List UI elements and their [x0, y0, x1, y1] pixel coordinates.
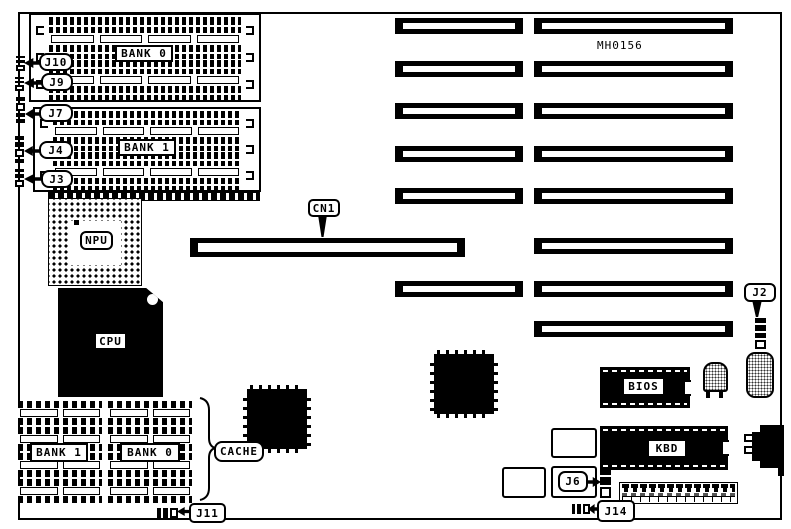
rom-dash: [603, 465, 725, 467]
slot-opening: [542, 151, 725, 157]
socket-clip-icon: [246, 145, 254, 154]
simm-body: [55, 127, 97, 135]
simm-body-row: [51, 35, 239, 43]
callout-j7: J7: [39, 104, 73, 122]
slot-opening: [403, 23, 515, 29]
jumper-j4: [15, 136, 24, 163]
simm-socket-row: [53, 178, 241, 190]
bios-label: BIOS: [623, 378, 664, 395]
simm-socket-row: [49, 60, 241, 74]
isa-slot-ext: [395, 18, 523, 34]
slot-opening: [198, 243, 457, 252]
rom-notch-icon: [721, 440, 729, 456]
slot-opening: [542, 23, 725, 29]
crystal-icon: [746, 352, 774, 398]
simm-body: [148, 35, 191, 43]
bank0-cache-label: BANK 0: [120, 443, 180, 462]
kbd-label: KBD: [648, 440, 686, 457]
isa-slot: [534, 103, 733, 119]
isa-slot-ext: [395, 61, 523, 77]
callout-cn1: CN1: [308, 199, 340, 217]
callout-j6: J6: [558, 471, 588, 492]
header-pins: [622, 488, 735, 492]
simm-body: [103, 168, 145, 176]
part-number: MH0156: [597, 39, 643, 52]
slot-opening: [403, 286, 515, 292]
bank1-simm-label: BANK 1: [118, 139, 176, 156]
socket-clip-icon: [246, 26, 254, 35]
simm-body: [51, 35, 94, 43]
isa-slot: [534, 281, 733, 297]
slot-opening: [542, 108, 725, 114]
socket-clips-right: [244, 17, 256, 98]
socket-clip-icon: [246, 119, 254, 128]
simm-socket-row: [49, 86, 241, 100]
cn1-slot: [190, 238, 465, 257]
callout-j3: J3: [41, 170, 73, 188]
simm-body: [100, 76, 143, 84]
rom-notch-icon: [683, 380, 691, 396]
simm-socket-row: [53, 111, 241, 125]
npu-label: NPU: [80, 231, 113, 250]
simm-body-row: [55, 168, 239, 176]
header-sockets: [622, 496, 735, 502]
kbd-pin-header: [619, 482, 738, 504]
callout-j9: J9: [41, 73, 73, 91]
simm-body-row: [51, 76, 239, 84]
isa-slot-ext: [395, 146, 523, 162]
socket-clip-icon: [246, 53, 254, 62]
socket-clip-icon: [36, 26, 44, 35]
slot-opening: [542, 66, 725, 72]
isa-slot: [534, 321, 733, 337]
slot-opening: [403, 193, 515, 199]
slot-opening: [542, 243, 725, 249]
qfp-chipset: [430, 350, 498, 418]
simm-body: [198, 127, 240, 135]
jumper-j7: [16, 97, 25, 123]
rom-dash: [603, 403, 687, 405]
qfp-pins: [437, 414, 491, 418]
dip-chip: [18, 401, 102, 425]
callout-j2: J2: [744, 283, 776, 302]
socket-clip-icon: [246, 171, 254, 180]
qfp-pins: [307, 392, 311, 446]
bank0-simm-label: BANK 0: [115, 45, 173, 62]
callout-cache: CACHE: [214, 441, 264, 462]
dip-chip: [18, 479, 102, 503]
callout-j4: J4: [39, 141, 73, 159]
motherboard-diagram: BANK 0 BANK 1 J10 J9 J7 J4: [0, 0, 791, 529]
callout-j11: J11: [189, 503, 226, 523]
simm-body: [100, 35, 143, 43]
qfp-body: [434, 354, 494, 414]
dip-chip: [108, 401, 192, 425]
jumper-j2: [755, 318, 766, 349]
isa-slot-ext: [395, 281, 523, 297]
din-connector-foot: [778, 466, 784, 476]
rom-dash: [603, 429, 725, 431]
isa-slot: [534, 61, 733, 77]
isa-slot: [534, 146, 733, 162]
simm-body: [198, 168, 240, 176]
slot-opening: [403, 151, 515, 157]
simm-body: [148, 76, 191, 84]
jumper-j11: [157, 508, 178, 518]
simm-body: [197, 35, 240, 43]
jumper-j3: [15, 169, 24, 187]
din-pin-icon: [744, 434, 754, 442]
slot-opening: [542, 286, 725, 292]
dip-chip: [108, 479, 192, 503]
jumper-j14: [572, 504, 590, 514]
din-connector: [760, 425, 784, 468]
simm-body-row: [55, 127, 239, 135]
simm-body: [150, 168, 192, 176]
din-pin-icon: [744, 446, 754, 454]
pin1-marker-icon: [74, 220, 79, 225]
slot-opening: [403, 108, 515, 114]
slot-opening: [403, 66, 515, 72]
slot-opening: [542, 326, 725, 332]
jumper-j9: [15, 77, 24, 91]
slot-opening: [542, 193, 725, 199]
socket-clip-icon: [246, 80, 254, 89]
chip-outline: [502, 467, 546, 498]
isa-slot-ext: [395, 188, 523, 204]
cpu-label: CPU: [95, 333, 126, 349]
rom-dash: [603, 370, 687, 372]
simm-body: [197, 76, 240, 84]
callout-j10: J10: [39, 53, 73, 71]
capacitor-icon: [703, 362, 728, 392]
jumper-j10: [16, 56, 25, 71]
socket-clips-right: [244, 111, 256, 188]
simm-body: [103, 127, 145, 135]
isa-slot: [534, 238, 733, 254]
isa-slot-ext: [395, 103, 523, 119]
qfp-body: [247, 389, 307, 449]
simm-body: [150, 127, 192, 135]
qfp-pins: [494, 357, 498, 411]
bank1-cache-label: BANK 1: [30, 443, 88, 462]
isa-slot: [534, 188, 733, 204]
simm-socket-row: [49, 17, 241, 33]
jumper-j6: [600, 468, 611, 498]
isa-slot: [534, 18, 733, 34]
chip-outline: [551, 428, 597, 458]
callout-j14: J14: [597, 500, 635, 522]
